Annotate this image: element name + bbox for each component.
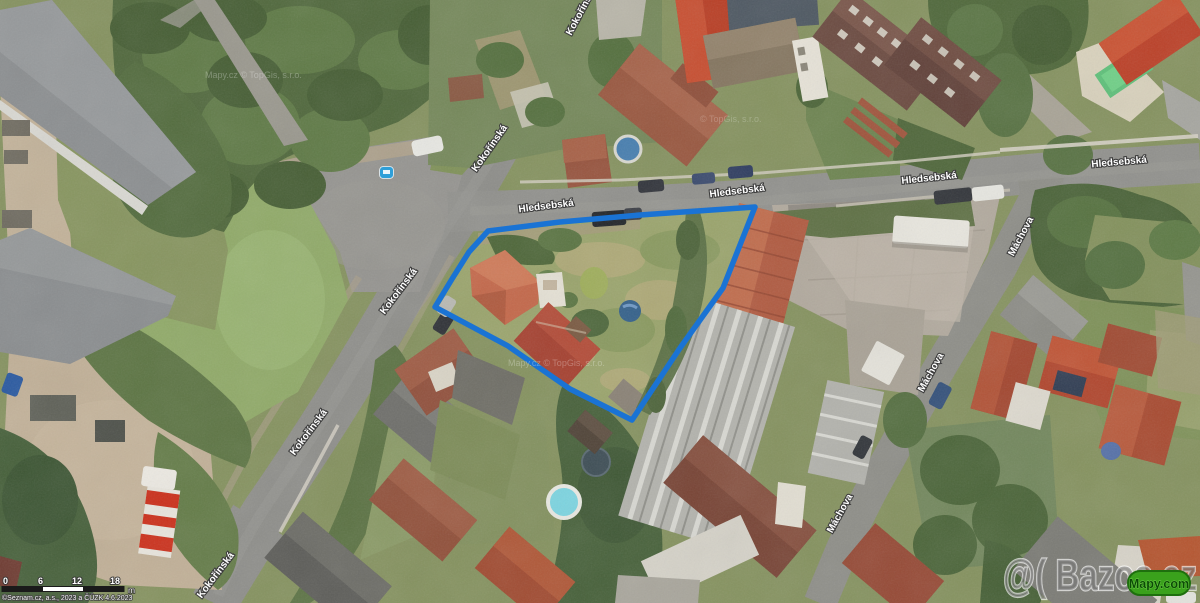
svg-text:18: 18 [110,576,120,586]
svg-text:© TopGis, s.r.o.: © TopGis, s.r.o. [700,114,762,124]
svg-text:©Seznam.cz, a.s., 2023 a ČÚZK: ©Seznam.cz, a.s., 2023 a ČÚZK 4.6.2023 [2,593,133,602]
svg-text:m: m [128,585,135,595]
svg-text:Mapy.com: Mapy.com [1129,577,1189,591]
svg-text:Mapy.cz © TopGis, s.r.o.: Mapy.cz © TopGis, s.r.o. [205,70,302,80]
svg-text:Mapy.cz © TopGis, s.r.o.: Mapy.cz © TopGis, s.r.o. [508,358,605,368]
svg-text:0: 0 [3,576,8,586]
svg-text:12: 12 [72,576,82,586]
svg-text:6: 6 [38,576,43,586]
